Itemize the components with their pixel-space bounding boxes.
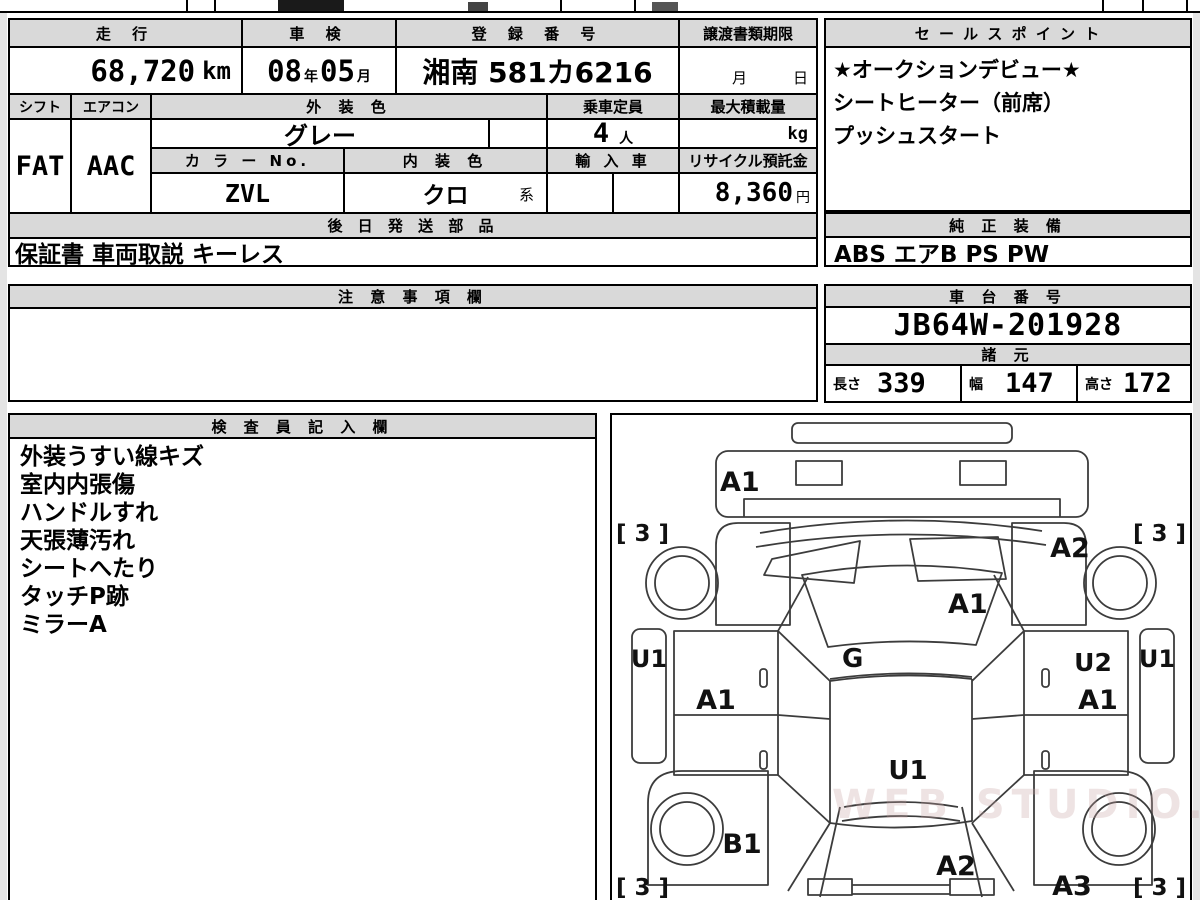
spec-height-cell: 高さ 172 — [1078, 366, 1190, 401]
inspection-year: 08 — [267, 54, 302, 88]
chassis-specs-box: 車 台 番 号 JB64W-201928 諸 元 長さ 339 幅 147 高さ… — [824, 284, 1192, 403]
later-parts-cell: 保証書 車両取説 キーレス — [10, 239, 816, 265]
mileage-cell: 68,720 km — [10, 48, 243, 95]
right-edge — [1193, 12, 1200, 900]
inspector-note: 外装うすい線キズ — [10, 443, 595, 471]
a-pillar-left — [778, 577, 808, 631]
import-empty-cell-1 — [548, 174, 614, 214]
oem-equipment-cell: ABS エアB PS PW — [826, 238, 1190, 265]
registration-value: 湘南 581カ6216 — [422, 51, 652, 91]
year-suffix: 年 — [304, 66, 318, 86]
windshield-arc-1 — [760, 520, 1042, 533]
spec-height-label: 高さ — [1085, 374, 1113, 394]
caution-notes-body — [10, 309, 816, 400]
recycle-unit: 円 — [796, 187, 810, 207]
windshield-arc-2 — [756, 534, 1046, 547]
inspector-notes-header: 検 査 員 記 入 欄 — [10, 415, 595, 439]
mileage-header: 走 行 — [10, 20, 243, 48]
main-info-table: 走 行 車 検 登 録 番 号 譲渡書類期限 68,720 km 08 年 05… — [8, 18, 818, 267]
inspector-note: ミラーA — [10, 611, 595, 639]
rear-right-tire-code: [ 3 ] — [1133, 875, 1186, 898]
inspector-note: ハンドルすれ — [10, 499, 595, 527]
inspection-header: 車 検 — [243, 20, 397, 48]
diag-left-mid — [778, 715, 830, 719]
spec-length-cell: 長さ 339 — [826, 366, 962, 401]
sales-point-box: セ ー ル ス ポ イ ン ト ★オークションデビュー★ シートヒーター（前席）… — [824, 18, 1192, 212]
caution-notes-header: 注 意 事 項 欄 — [10, 286, 816, 309]
rear-left-tire-code: [ 3 ] — [616, 875, 669, 898]
capacity-unit: 人 — [619, 128, 633, 148]
cutoff-top-row — [0, 0, 1200, 13]
mileage-value: 68,720 — [90, 54, 195, 88]
oem-equipment-value: ABS エアB PS PW — [834, 235, 1049, 269]
interior-color-value: クロ — [423, 176, 469, 210]
recycle-cell: 8,360 円 — [680, 174, 816, 214]
rear-left-wheel-inner — [660, 802, 714, 856]
aircon-cell: AAC — [72, 120, 152, 214]
interior-color-cell: クロ 系 — [345, 174, 548, 214]
diag-right-mid — [972, 715, 1024, 719]
inspector-note: タッチP跡 — [10, 583, 595, 611]
import-empty-cell-2 — [614, 174, 680, 214]
left-door-code: A1 — [696, 685, 736, 716]
right-door-handle-front — [1042, 669, 1049, 687]
spec-width-label: 幅 — [969, 374, 983, 394]
registration-cell: 湘南 581カ6216 — [397, 48, 680, 95]
auction-sheet: 走 行 車 検 登 録 番 号 譲渡書類期限 68,720 km 08 年 05… — [0, 0, 1200, 900]
cutoff-text-remnant — [468, 2, 488, 11]
spec-width-value: 147 — [1005, 368, 1054, 399]
right-door-upper-code: U2 — [1074, 648, 1112, 677]
deadline-header: 譲渡書類期限 — [680, 20, 816, 48]
shift-value: FAT — [16, 151, 65, 182]
cutoff-divider — [1186, 0, 1188, 11]
right-door-handle-rear — [1042, 751, 1049, 769]
max-load-unit: kg — [788, 124, 808, 144]
wiper-panel-right — [910, 537, 1006, 581]
cutoff-text-remnant — [652, 2, 678, 11]
spec-width-cell: 幅 147 — [962, 366, 1078, 401]
import-header: 輸 入 車 — [548, 149, 680, 174]
rear-left-wheel — [651, 793, 723, 865]
rear-left-quarter — [648, 771, 768, 885]
cutoff-divider — [214, 0, 216, 11]
month-suffix: 月 — [357, 66, 371, 86]
front-left-tire-code: [ 3 ] — [616, 521, 669, 547]
inspector-notes-body: 外装うすい線キズ 室内内張傷 ハンドルすれ 天張薄汚れ シートへたり タッチP跡… — [10, 439, 595, 898]
exterior-color-empty-cell — [490, 120, 548, 149]
front-left-wheel-inner — [655, 556, 709, 610]
chassis-value: JB64W-201928 — [894, 308, 1123, 343]
front-right-tire-code: [ 3 ] — [1133, 521, 1186, 547]
spec-height-value: 172 — [1123, 368, 1172, 399]
cutoff-divider — [634, 0, 636, 11]
recycle-value: 8,360 — [715, 178, 793, 208]
inspection-month: 05 — [320, 54, 355, 88]
spec-length-value: 339 — [877, 368, 926, 399]
rear-gate-code: A2 — [936, 851, 976, 882]
left-edge — [0, 12, 7, 900]
a-pillar-right — [994, 575, 1024, 631]
inspection-cell: 08 年 05 月 — [243, 48, 397, 95]
interior-color-suffix: 系 — [519, 184, 534, 205]
front-right-fender-code: A2 — [1050, 533, 1090, 564]
bumper-detail-left — [796, 461, 842, 485]
front-top-strip — [792, 423, 1012, 443]
deadline-cell: 月 日 — [680, 48, 816, 95]
left-door-handle-front — [760, 669, 767, 687]
deadline-month-label: 月 — [732, 67, 747, 88]
front-bumper-code: A1 — [720, 467, 760, 498]
front-right-wheel — [1084, 547, 1156, 619]
color-no-cell: ZVL — [152, 174, 345, 214]
cutoff-divider — [560, 0, 562, 11]
sales-point-line: プッシュスタート — [826, 120, 1190, 153]
diag-left-top — [778, 631, 830, 681]
rear-bumper-detail-left — [808, 879, 852, 895]
sales-point-line: シートヒーター（前席） — [826, 87, 1190, 120]
inspector-note: 室内内張傷 — [10, 471, 595, 499]
recycle-header: リサイクル預託金 — [680, 149, 816, 174]
right-quarter-code: A3 — [1052, 871, 1092, 898]
registration-header: 登 録 番 号 — [397, 20, 680, 48]
aircon-value: AAC — [87, 151, 136, 182]
capacity-header: 乗車定員 — [548, 95, 680, 120]
exterior-color-value: グレー — [284, 116, 356, 151]
later-parts-value: 保証書 車両取説 キーレス — [15, 235, 284, 269]
max-load-header: 最大積載量 — [680, 95, 816, 120]
deadline-day-label: 日 — [793, 67, 808, 88]
right-rocker-code: U1 — [1139, 645, 1175, 673]
hood-code: A1 — [948, 589, 988, 620]
spec-length-label: 長さ — [833, 374, 861, 394]
chassis-header: 車 台 番 号 — [826, 286, 1190, 308]
color-no-header: カ ラ ー No. — [152, 149, 345, 174]
wiper-panel-left — [764, 541, 860, 583]
sales-point-header: セ ー ル ス ポ イ ン ト — [826, 20, 1190, 48]
oem-equipment-box: 純 正 装 備 ABS エアB PS PW — [824, 212, 1192, 267]
left-door-handle-rear — [760, 751, 767, 769]
glass-code: G — [842, 644, 863, 674]
sales-point-line: ★オークションデビュー★ — [826, 54, 1190, 87]
left-quarter-code: B1 — [722, 829, 761, 860]
front-bumper-shape — [716, 451, 1088, 517]
diag-right-top — [972, 631, 1024, 681]
sales-point-body: ★オークションデビュー★ シートヒーター（前席） プッシュスタート — [826, 48, 1190, 210]
right-door-code: A1 — [1078, 685, 1118, 716]
specs-header: 諸 元 — [826, 345, 1190, 366]
cutoff-divider — [186, 0, 188, 11]
inspector-notes-box: 検 査 員 記 入 欄 外装うすい線キズ 室内内張傷 ハンドルすれ 天張薄汚れ … — [8, 413, 597, 900]
inspector-note: 天張薄汚れ — [10, 527, 595, 555]
color-no-value: ZVL — [225, 179, 270, 208]
capacity-value: 4 — [593, 118, 609, 149]
front-right-wheel-inner — [1093, 556, 1147, 610]
interior-color-header: 内 装 色 — [345, 149, 548, 174]
cutoff-text-remnant — [278, 0, 344, 11]
left-rocker-code: U1 — [631, 645, 667, 673]
bumper-detail-right — [960, 461, 1006, 485]
bumper-lower-step — [744, 499, 1060, 517]
chassis-cell: JB64W-201928 — [826, 308, 1190, 345]
max-load-cell: kg — [680, 120, 816, 149]
front-left-wheel — [646, 547, 718, 619]
watermark: WEB STUDIO.RU — [832, 782, 1200, 828]
mileage-unit: km — [202, 57, 231, 85]
caution-notes-box: 注 意 事 項 欄 — [8, 284, 818, 402]
cutoff-divider — [1102, 0, 1104, 11]
exterior-color-cell: グレー — [152, 120, 490, 149]
front-left-fender — [716, 523, 790, 625]
aircon-header: エアコン — [72, 95, 152, 120]
diag-left-bottom — [778, 775, 830, 823]
cutoff-divider — [1142, 0, 1144, 11]
shift-header: シフト — [10, 95, 72, 120]
inspector-note: シートへたり — [10, 555, 595, 583]
capacity-cell: 4 人 — [548, 120, 680, 149]
shift-cell: FAT — [10, 120, 72, 214]
